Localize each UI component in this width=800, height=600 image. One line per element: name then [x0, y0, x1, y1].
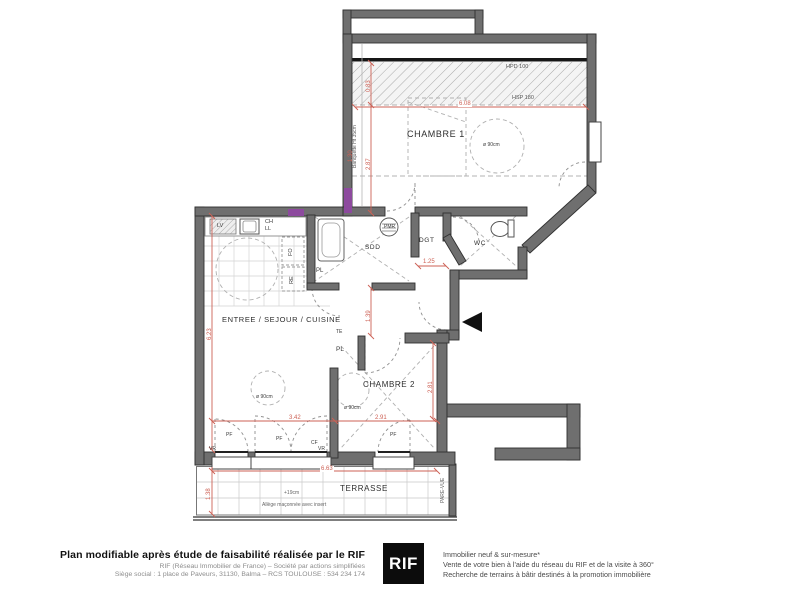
circle-diameter-sejour: ø 90cm: [256, 395, 273, 400]
footer-legal-block: Plan modifiable après étude de faisabili…: [55, 549, 365, 578]
dim-terrasse-width: 6.63: [320, 466, 334, 472]
room-label-terrasse: TERRASSE: [340, 485, 388, 493]
dim-sejour-width: 3.42: [289, 415, 301, 421]
dim-chambre1-width: 6.08: [458, 101, 472, 107]
room-label-dgt: DGT: [419, 238, 435, 245]
footer-tagline-2: Vente de votre bien à l'aide du réseau d…: [443, 561, 773, 568]
closet-label-pl2: PL: [336, 347, 344, 354]
terrace-floor-grid: [193, 467, 457, 521]
pare-vue-label: PARE-VUE: [441, 478, 446, 503]
pf-label-2: PF: [276, 437, 282, 442]
pmr-label: PMR: [384, 225, 395, 230]
dim-terrasse-depth: 1.38: [206, 488, 212, 500]
closet-label-pl1: PL: [316, 268, 323, 274]
bathroom-fixtures: [318, 122, 601, 261]
dim-chambre1-depth: 2.87: [366, 158, 372, 170]
dim-sejour-height: 6.23: [207, 328, 213, 340]
floor-plan-drawing: [0, 0, 800, 600]
footer-tagline-3: Recherche de terrains à bâtir destinés à…: [443, 571, 773, 578]
dim-hpd-depth: 0.83: [366, 80, 372, 92]
re-label: RE: [290, 276, 296, 284]
ll-label: LL: [265, 227, 271, 233]
ch-label: CH: [265, 220, 273, 226]
structural-beam-line: [352, 58, 588, 62]
hpd-label: HPD 100: [506, 65, 528, 71]
footer-title: Plan modifiable après étude de faisabili…: [55, 549, 365, 561]
circle-diameter-chambre1: ø 90cm: [483, 143, 500, 148]
floor-plan-page: CHAMBRE 1 CHAMBRE 2 ENTREE / SEJOUR / CU…: [0, 0, 800, 600]
footer-company-line1: RIF (Réseau Immobilier de France) – Soci…: [55, 563, 365, 570]
hsp-label: HSP 180: [512, 96, 534, 102]
room-label-chambre1: CHAMBRE 1: [407, 130, 465, 139]
room-label-wc: WC: [474, 241, 486, 248]
fo-label: FO: [289, 248, 295, 256]
entrance-arrow-icon: [462, 312, 482, 332]
window-sills: [212, 452, 414, 469]
dim-chambre2-depth: 2.81: [428, 381, 434, 393]
dim-banquette: 1.30: [348, 150, 354, 162]
vr-label-2: VR: [318, 447, 325, 452]
rif-logo: RIF: [383, 543, 424, 584]
circle-diameter-chambre2: ø 90cm: [344, 406, 361, 411]
dim-dgt: 1.25: [423, 259, 435, 265]
footer-company-line2: Siège social : 1 place de Paveurs, 31130…: [55, 571, 365, 578]
cf-label: CF: [311, 441, 318, 446]
allege-label: Allège maçonnée avec insert: [262, 503, 326, 508]
footer-tagline-1: Immobilier neuf & sur-mesure*: [443, 551, 773, 558]
room-label-chambre2: CHAMBRE 2: [363, 381, 415, 389]
te-label: TE: [336, 330, 342, 335]
room-label-sdd: SDD: [365, 245, 381, 252]
lv-label: LV: [217, 224, 223, 230]
room-label-sejour: ENTREE / SEJOUR / CUISINE: [222, 316, 341, 324]
dim-passage: 1.39: [366, 310, 372, 322]
vr-label-1: VR: [209, 447, 216, 452]
hpd-hatched-zone: [352, 62, 588, 105]
pf-label-1: PF: [226, 433, 232, 438]
pf-label-3: PF: [390, 433, 396, 438]
dim-chambre2-width: 2.91: [375, 415, 387, 421]
terrace-level-label: +19cm: [284, 491, 299, 496]
